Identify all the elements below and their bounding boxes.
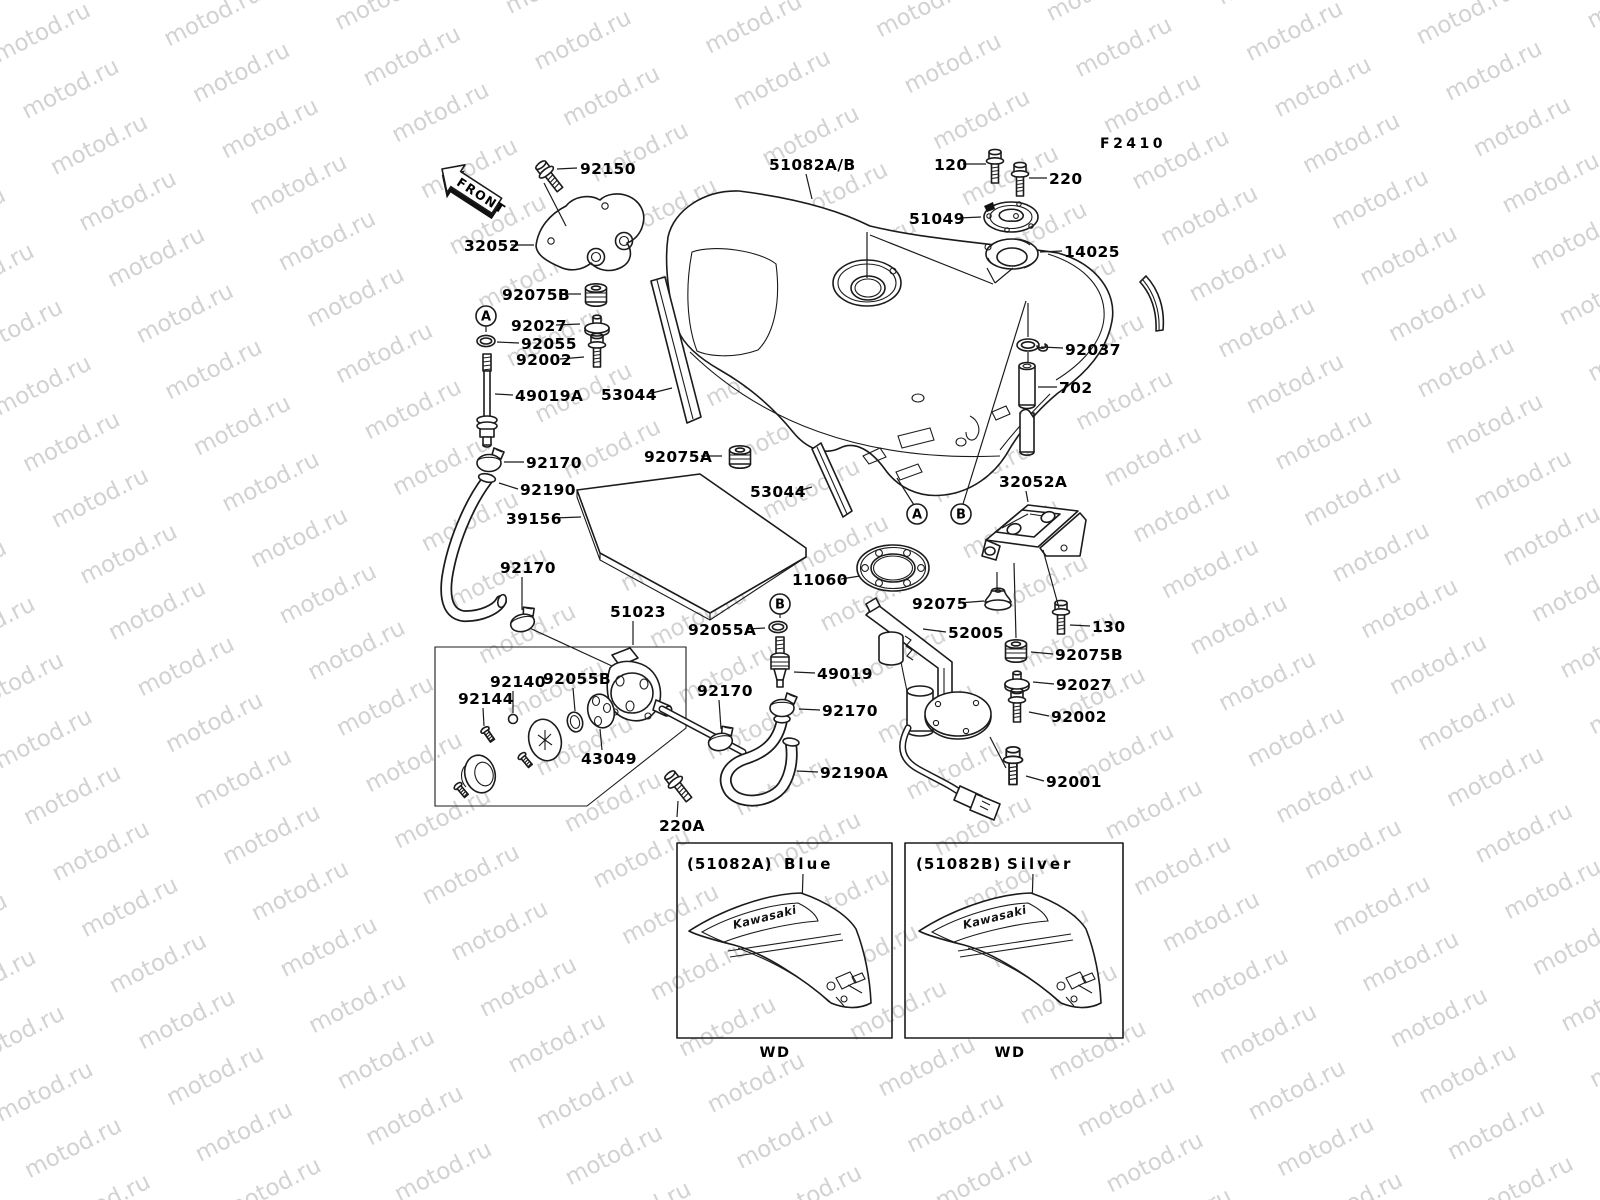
damper-92075 (985, 588, 1011, 610)
part-label-92055B: 92055B (543, 670, 611, 688)
front-arrow: FRONT (430, 156, 514, 229)
leader-line (1029, 712, 1049, 716)
part-label-92037: 92037 (1065, 341, 1121, 359)
leader-line (1070, 625, 1090, 626)
bracket-32052A (982, 505, 1086, 560)
part-label-11060: 11060 (792, 571, 848, 589)
variant-box-51082A: (51082A) Blue Kawasaki WD (677, 843, 892, 1061)
oring-92055A (769, 621, 787, 632)
fuel-hose-92190A (726, 715, 800, 800)
leader-line (719, 700, 721, 729)
wd-label-b: WD (994, 1045, 1025, 1061)
part-label-130: 130 (1092, 618, 1126, 636)
callout-letter-A: A (912, 508, 922, 523)
leader-line (557, 168, 577, 169)
variant-code-a: (51082A) (687, 855, 773, 873)
washer-92027-left (585, 315, 609, 336)
bolt-220 (1012, 162, 1029, 196)
grommet-92075A (730, 446, 751, 468)
bolt-120 (987, 149, 1004, 183)
callout-letter-B: B (775, 598, 785, 613)
part-label-92002: 92002 (1051, 708, 1107, 726)
figure-code: F2410 (1100, 136, 1166, 152)
diagram-page: motod.rumotod.rumotod.rumotod.rumotod.ru… (0, 0, 1600, 1200)
variant-color-a: Blue (784, 855, 833, 873)
part-label-32052A: 32052A (999, 473, 1067, 491)
leader-line (499, 483, 518, 489)
variant-box-51082B: (51082B) Silver Kawasaki WD (905, 843, 1123, 1061)
fuel-hose-92190 (446, 472, 507, 616)
part-label-49019A: 49019A (515, 387, 583, 405)
leader-line (797, 771, 818, 772)
grommet-92075B-left (586, 284, 607, 306)
part-label-52005: 52005 (948, 624, 1004, 642)
part-label-92001: 92001 (1046, 773, 1102, 791)
cap-gasket-14025 (985, 239, 1038, 269)
part-label-92144: 92144 (458, 690, 514, 708)
part-label-92170: 92170 (822, 702, 878, 720)
part-label-92170: 92170 (526, 454, 582, 472)
leader-line (923, 629, 946, 632)
callout-letter-A: A (481, 310, 491, 325)
part-label-14025: 14025 (1064, 243, 1120, 261)
part-label-51049: 51049 (909, 210, 965, 228)
part-label-92075A: 92075A (644, 448, 712, 466)
leader-line (794, 672, 815, 673)
leader-line (799, 709, 820, 710)
part-label-51023: 51023 (610, 603, 666, 621)
wd-label-a: WD (759, 1045, 790, 1061)
part-label-49019: 49019 (817, 665, 873, 683)
part-label-92002: 92002 (516, 351, 572, 369)
part-label-702: 702 (1059, 379, 1093, 397)
pump-gasket-11060 (857, 545, 929, 591)
bolt-92150 (533, 158, 567, 195)
fuel-tap-49019A (477, 354, 497, 447)
leader-line (806, 174, 812, 199)
variant-color-b: Silver (1007, 855, 1073, 873)
clamp-92170-d (770, 693, 797, 717)
part-label-92075: 92075 (912, 595, 968, 613)
part-label-92170: 92170 (697, 682, 753, 700)
screw-92144 (480, 725, 496, 743)
oring-92055 (477, 335, 495, 346)
petcock-assembly-51023 (435, 625, 743, 806)
grommet-92075B-right (1006, 640, 1027, 662)
bolt-92001 (1003, 747, 1022, 785)
variant-code-b: (51082B) (916, 855, 1001, 873)
part-label-53044: 53044 (601, 386, 657, 404)
bolt-92002-right (1009, 688, 1026, 722)
part-label-92027: 92027 (511, 317, 567, 335)
fuel-cap-51049 (984, 202, 1038, 232)
bolt-220A (662, 768, 696, 805)
leader-line (1026, 491, 1028, 502)
leader-line (483, 708, 484, 726)
leader-line (677, 801, 678, 817)
part-label-92190A: 92190A (820, 764, 888, 782)
leader-line (600, 729, 602, 750)
part-label-51082A/B: 51082A/B (769, 156, 856, 174)
part-label-220: 220 (1049, 170, 1083, 188)
part-label-32052: 32052 (464, 237, 520, 255)
leader-line (497, 342, 519, 343)
part-label-220A: 220A (659, 817, 705, 835)
leader-line (1033, 682, 1054, 684)
leader-line (495, 394, 513, 395)
part-label-120: 120 (934, 156, 968, 174)
bolt-130 (1053, 600, 1070, 634)
part-label-92075B: 92075B (1055, 646, 1123, 664)
part-label-39156: 39156 (506, 510, 562, 528)
sender-valve-49019 (771, 637, 789, 687)
leader-line (573, 688, 575, 711)
part-label-92140: 92140 (490, 673, 546, 691)
part-label-92055A: 92055A (688, 621, 756, 639)
bracket-32052 (536, 194, 644, 271)
part-label-92027: 92027 (1056, 676, 1112, 694)
part-label-92150: 92150 (580, 160, 636, 178)
leader-line (1031, 652, 1053, 654)
callout-letter-B: B (956, 508, 966, 523)
leader-line (1026, 776, 1044, 781)
parts-diagram: FRONT (0, 0, 1600, 1200)
part-label-53044: 53044 (750, 483, 806, 501)
part-label-92075B: 92075B (502, 286, 570, 304)
washer-92027-right (1005, 671, 1029, 692)
clamp-92170-a (477, 448, 504, 472)
part-label-92170: 92170 (500, 559, 556, 577)
part-label-43049: 43049 (581, 750, 637, 768)
part-label-92190: 92190 (520, 481, 576, 499)
bolt-92002-left (589, 333, 606, 367)
